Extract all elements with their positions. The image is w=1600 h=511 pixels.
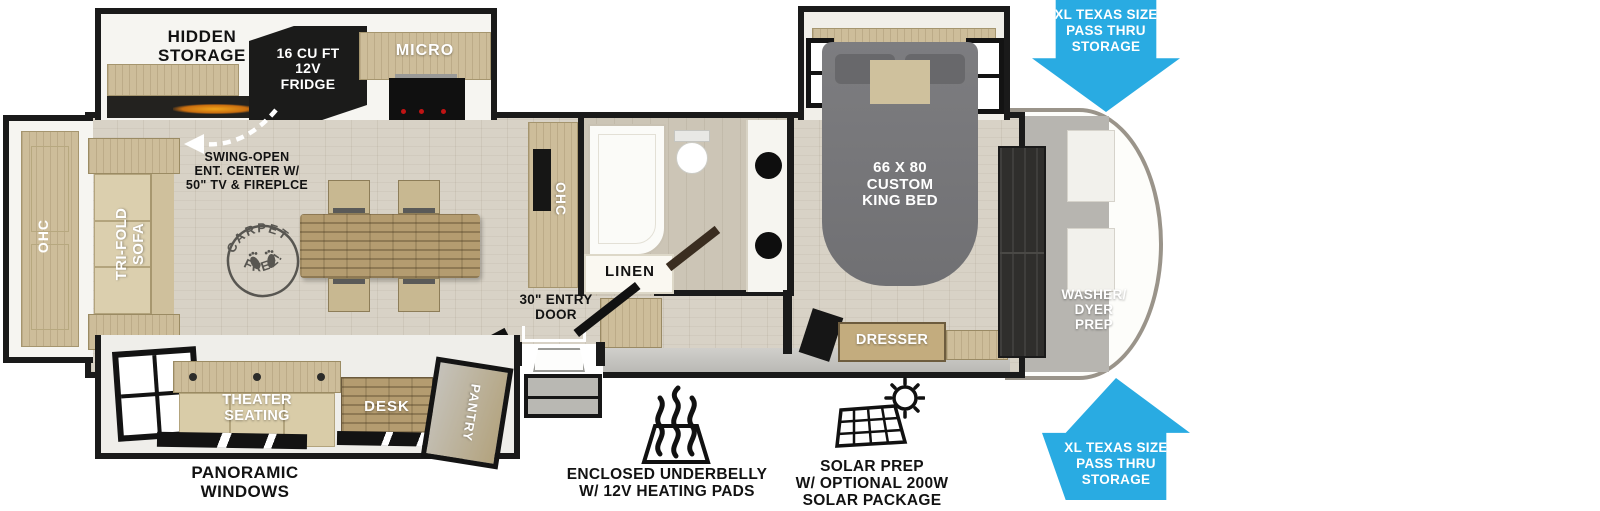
- toilet: [674, 130, 710, 176]
- micro-label: MICRO: [369, 42, 481, 60]
- bath-vanity: [746, 120, 787, 292]
- heating-pads-icon: [628, 380, 723, 464]
- svg-text:FREE!: FREE!: [239, 247, 288, 279]
- dinette-table: [300, 214, 480, 278]
- linen-label: LINEN: [586, 264, 674, 281]
- hidden-storage-cabinet: [107, 64, 239, 96]
- king-bed-label: 66 X 80 CUSTOM KING BED: [822, 160, 978, 210]
- wardrobe: [998, 146, 1046, 358]
- underbelly-caption: ENCLOSED UNDERBELLY W/ 12V HEATING PADS: [562, 466, 772, 500]
- front-cap-cabinet-upper: [1067, 130, 1115, 202]
- solar-caption: SOLAR PREP W/ OPTIONAL 200W SOLAR PACKAG…: [782, 458, 962, 509]
- entry-steps: [524, 374, 602, 418]
- ent-center-label: SWING-OPEN ENT. CENTER W/ 50" TV & FIREP…: [168, 150, 326, 192]
- floorplan-canvas: OHC TRI-FOLD SOFA HIDDEN STORAGE 16 CU F…: [0, 0, 1600, 511]
- shower: [588, 124, 666, 256]
- dinette-chair: [328, 278, 370, 312]
- dresser-label: DRESSER: [840, 333, 944, 349]
- pass-thru-top-label: XL TEXAS SIZE PASS THRU STORAGE: [1042, 7, 1170, 55]
- king-bed: 66 X 80 CUSTOM KING BED: [822, 42, 978, 286]
- bath-sink: [755, 152, 782, 179]
- carpet-free-bottom-text: FREE!: [239, 247, 288, 279]
- pass-thru-storage-arrow-bottom: XL TEXAS SIZE PASS THRU STORAGE: [1042, 378, 1190, 500]
- bed-blanket: [870, 60, 930, 104]
- pantry: PANTRY: [421, 357, 514, 470]
- front-cap-cabinet-lower: [1067, 228, 1115, 292]
- panoramic-window-strip: [157, 432, 307, 450]
- pantry-label: PANTRY: [450, 371, 484, 453]
- kitchen-slide: HIDDEN STORAGE 16 CU FT 12V FRIDGE MICRO: [95, 8, 497, 120]
- tri-fold-sofa: TRI-FOLD SOFA: [88, 138, 180, 350]
- kitchen-ohc-label: OHC: [542, 172, 568, 226]
- rear-ohc-label: OHC: [36, 204, 62, 268]
- theater-seating-label: THEATER SEATING: [181, 393, 333, 425]
- dinette-chair: [398, 278, 440, 312]
- entry-door-leaf: [533, 348, 585, 372]
- tri-fold-sofa-label: TRI-FOLD SOFA: [114, 184, 154, 304]
- solar-panel-icon: [833, 376, 925, 460]
- pass-thru-storage-arrow-top: XL TEXAS SIZE PASS THRU STORAGE: [1032, 0, 1180, 112]
- entry-door-post: [596, 342, 605, 366]
- washer-dryer-prep-label: WASHER/ DYER PREP: [1048, 288, 1140, 333]
- fridge-label: 16 CU FT 12V FRIDGE: [251, 46, 365, 92]
- bedroom-wall-stub: [783, 290, 792, 354]
- bathroom-door: [666, 226, 720, 271]
- bath-sink: [755, 232, 782, 259]
- desk-label: DESK: [343, 399, 431, 416]
- dinette-chair: [398, 180, 440, 214]
- dinette-chair: [328, 180, 370, 214]
- panoramic-windows-caption: PANORAMIC WINDOWS: [145, 464, 345, 501]
- stove: [389, 78, 465, 120]
- rear-slide: OHC: [3, 115, 93, 363]
- pass-thru-bottom-label: XL TEXAS SIZE PASS THRU STORAGE: [1052, 440, 1180, 488]
- bathroom: LINEN: [578, 118, 794, 296]
